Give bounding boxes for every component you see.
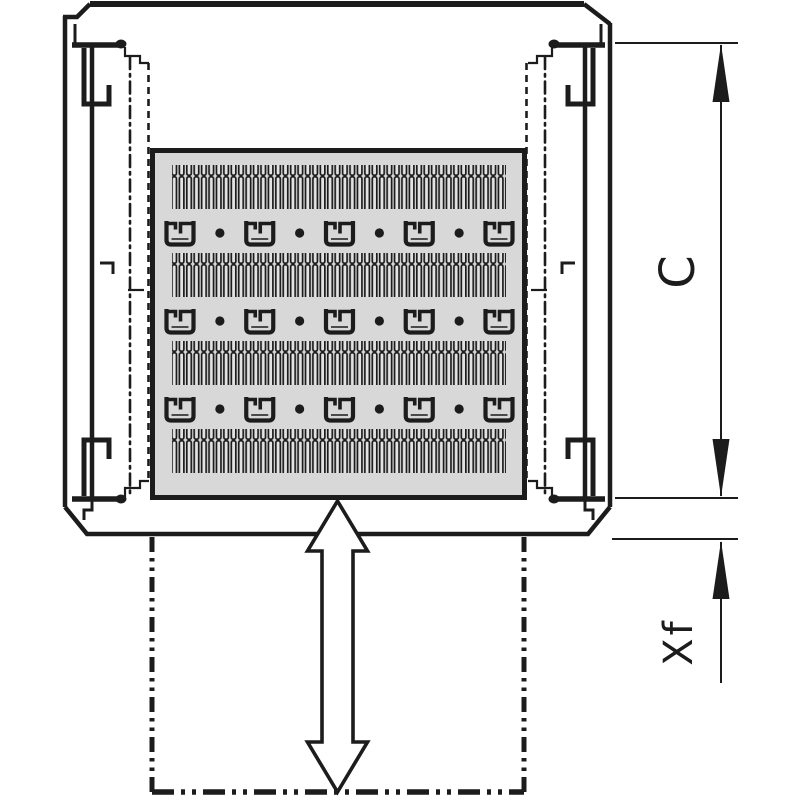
rivet-dot-icon bbox=[375, 316, 384, 325]
step-bottom-left bbox=[125, 481, 149, 497]
rivet-dot-icon bbox=[295, 404, 304, 413]
vent-slot-row bbox=[172, 341, 506, 385]
rivet-dot-icon bbox=[215, 404, 224, 413]
cabinet-top-left-bevel bbox=[63, 4, 90, 17]
hook-bottom-right bbox=[568, 440, 593, 496]
step-top-right bbox=[528, 47, 552, 63]
hook-top-right bbox=[568, 48, 593, 104]
arrowhead-up-xf-icon bbox=[713, 541, 730, 599]
rivet-dot-icon bbox=[375, 228, 384, 237]
step-bottom-right bbox=[528, 481, 552, 497]
pivot-bottom-right bbox=[549, 495, 560, 504]
double-arrow-icon bbox=[308, 501, 368, 792]
rail-tab-left bbox=[100, 263, 113, 274]
cabinet-top-right-bevel bbox=[584, 4, 610, 24]
step-top-left bbox=[125, 47, 149, 63]
hook-bottom-left bbox=[84, 440, 109, 496]
technical-drawing-page: C Xf bbox=[0, 0, 800, 800]
travel-arrow bbox=[308, 501, 368, 792]
rivet-dot-icon bbox=[295, 228, 304, 237]
dimension-c-label: C bbox=[650, 255, 706, 289]
rail-tab-right bbox=[562, 263, 575, 274]
vent-slot-row bbox=[172, 165, 506, 209]
rivet-dot-icon bbox=[215, 316, 224, 325]
cabinet-shelf-drawing: C Xf bbox=[0, 0, 800, 800]
shelf-panel bbox=[153, 151, 525, 498]
arrowhead-up-icon bbox=[713, 44, 730, 102]
rivet-dot-icon bbox=[215, 228, 224, 237]
hook-top-left bbox=[84, 48, 109, 104]
vent-slot-row bbox=[172, 429, 506, 473]
dimension-xf: Xf bbox=[612, 539, 738, 683]
rivet-dot-icon bbox=[375, 404, 384, 413]
rivet-dot-icon bbox=[455, 404, 464, 413]
vent-slot-row bbox=[172, 253, 506, 297]
rivet-dot-icon bbox=[455, 228, 464, 237]
dimension-c: C bbox=[615, 43, 738, 498]
dimension-xf-label: Xf bbox=[656, 618, 702, 665]
arrowhead-down-icon bbox=[713, 439, 730, 497]
pivot-top-right bbox=[549, 40, 560, 49]
rivet-dot-icon bbox=[295, 316, 304, 325]
rivet-dot-icon bbox=[455, 316, 464, 325]
